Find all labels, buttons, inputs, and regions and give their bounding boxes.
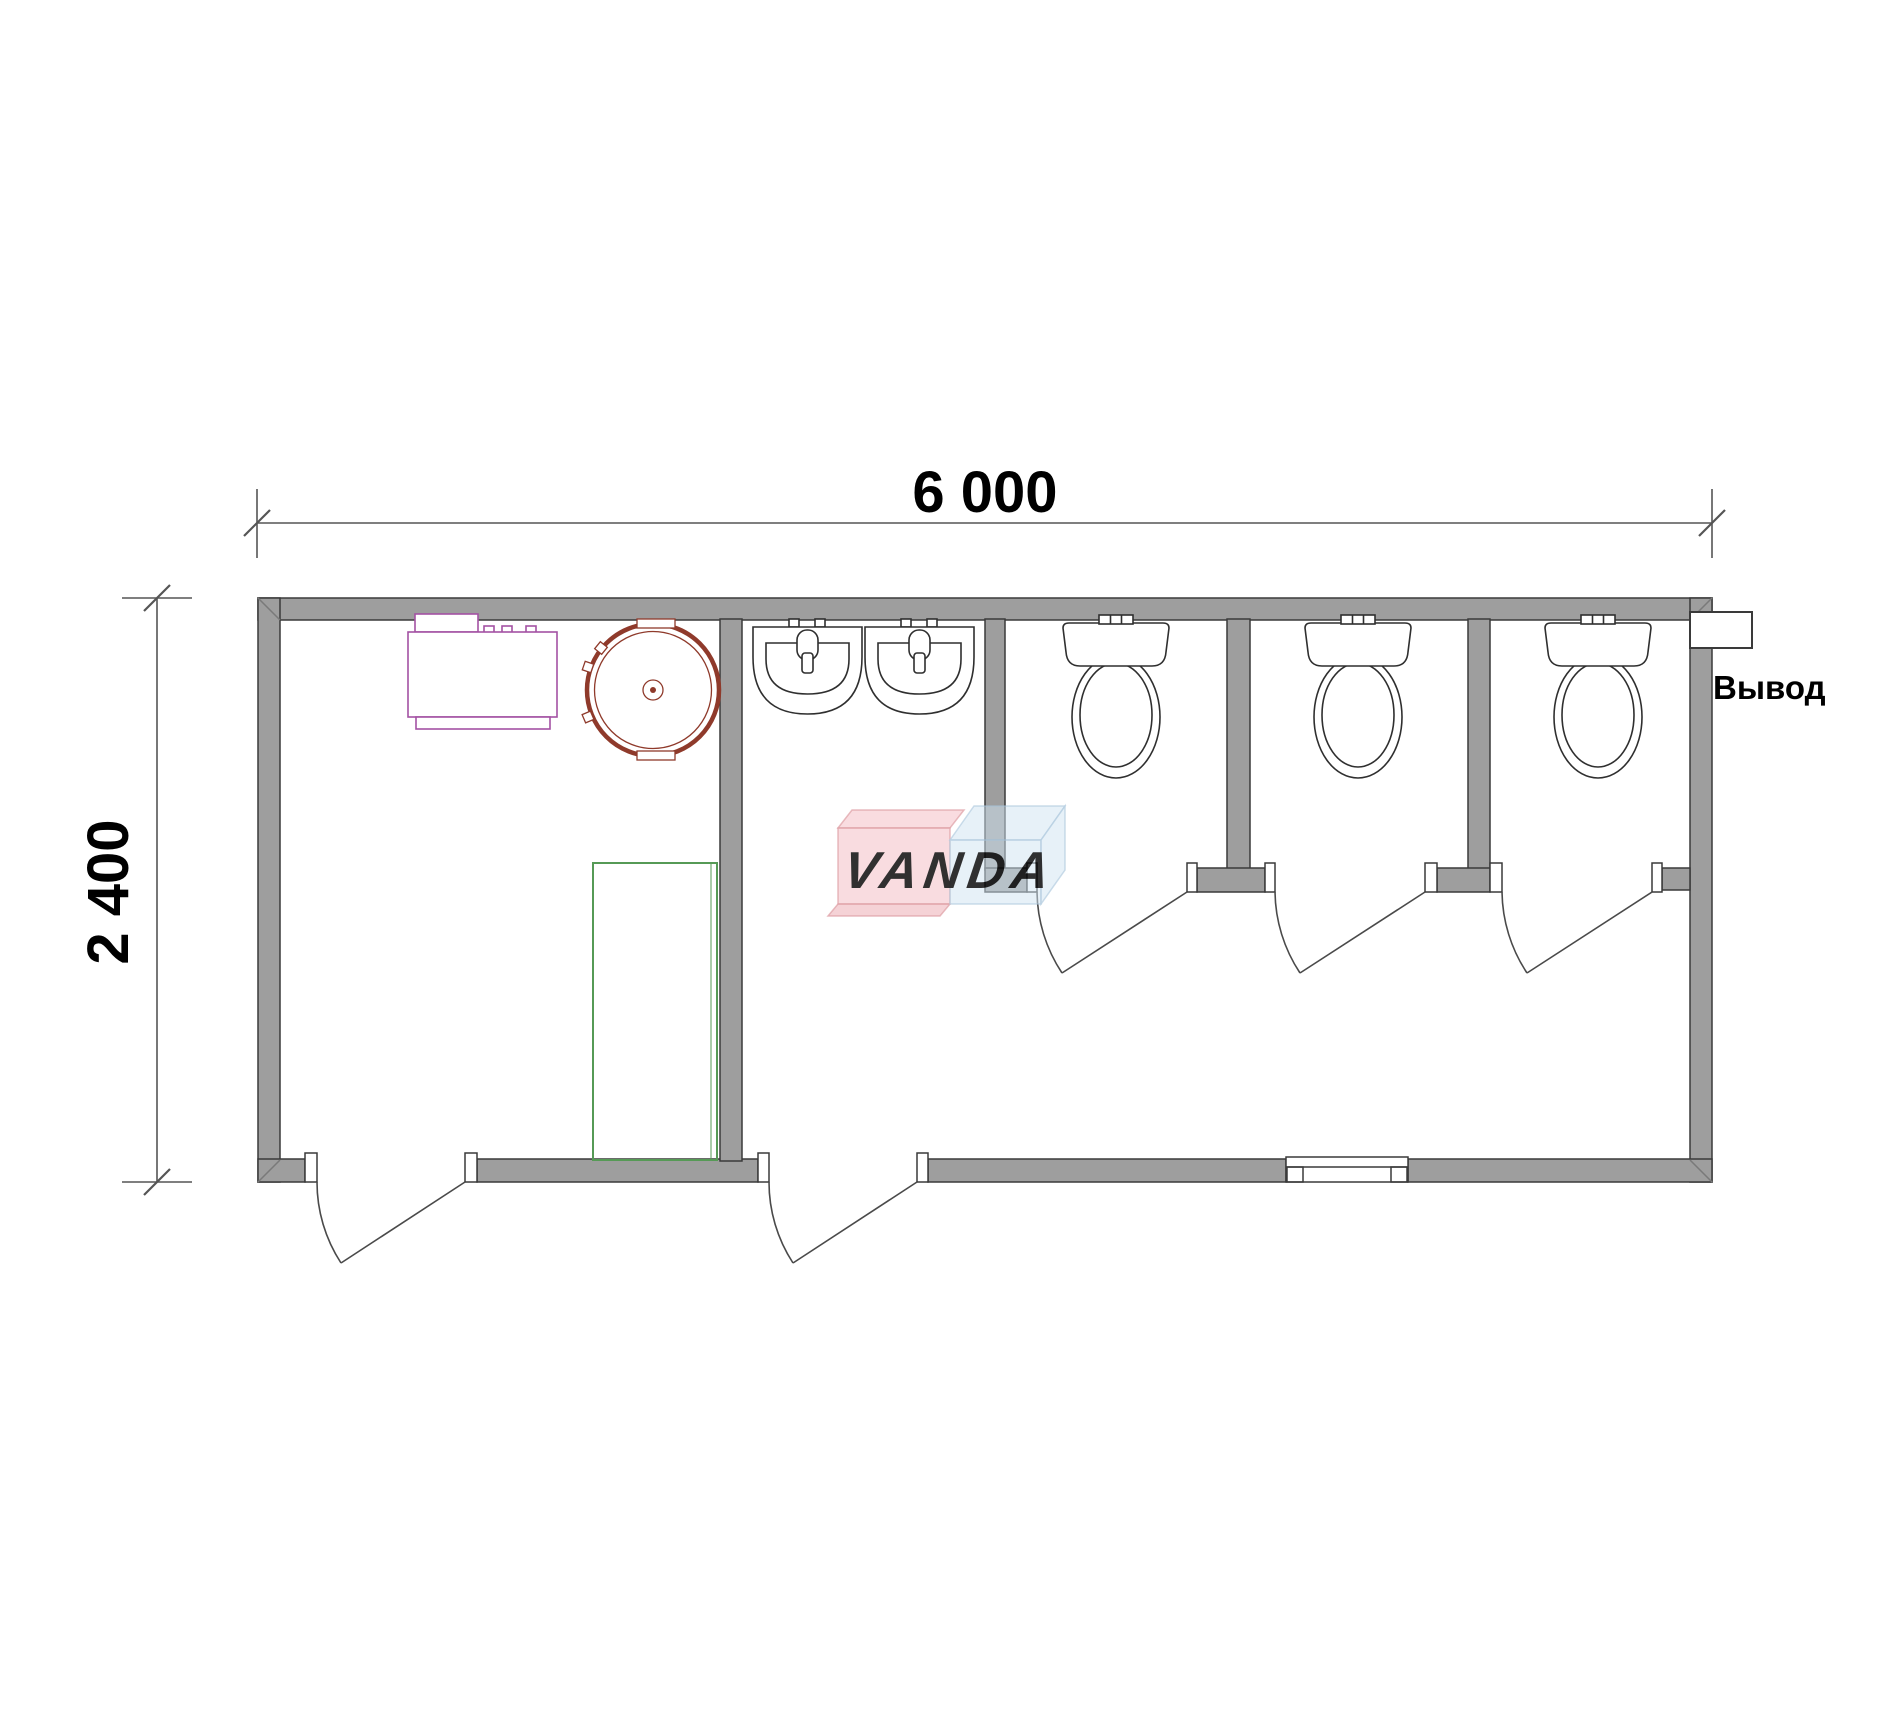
toilet-icon (1545, 615, 1651, 778)
door-swing-left-room (317, 1182, 465, 1263)
window-frame (1286, 1157, 1408, 1182)
wall-right (1690, 598, 1712, 1182)
doors (317, 892, 1652, 1263)
door-jamb (1187, 863, 1197, 892)
shower-tray-outline (593, 863, 717, 1160)
wall-bottom-segment (258, 1159, 305, 1182)
door-jamb (1265, 863, 1275, 892)
dimension-height: 2 400 (76, 585, 192, 1195)
door-jamb (1425, 863, 1437, 892)
door-leaf (1300, 892, 1425, 973)
outlet-label: Вывод (1713, 669, 1826, 706)
toilets (1063, 615, 1651, 778)
door-arc (1502, 892, 1527, 973)
door-swing-stall-1 (1037, 892, 1187, 973)
tank-bottom-tab (637, 751, 675, 760)
door-arc (769, 1182, 793, 1263)
height-dimension-label: 2 400 (76, 819, 141, 964)
width-dimension-label: 6 000 (912, 460, 1057, 525)
door-jamb (465, 1153, 477, 1182)
partition-stall-3 (1468, 619, 1490, 870)
water-heater-top-tab (415, 614, 478, 632)
water-heater-body (408, 632, 557, 717)
partition-stall-2-foot (1197, 868, 1265, 892)
door-leaf (793, 1182, 917, 1263)
round-water-tank-icon (582, 619, 719, 760)
watermark-pink-top (838, 810, 964, 828)
door-swing-stall-3 (1502, 892, 1652, 973)
washbasin-icon (865, 619, 974, 714)
toilet-icon (1063, 615, 1169, 778)
door-jamb (917, 1153, 928, 1182)
door-arc (317, 1182, 341, 1263)
wall-bottom-segment (477, 1159, 758, 1182)
partition-stall-3-foot (1437, 868, 1490, 892)
vanda-watermark: VANDA (828, 806, 1065, 916)
partition-stall-2 (1227, 619, 1250, 870)
door-leaf (1062, 892, 1187, 973)
water-heater-icon (408, 614, 557, 729)
washbasin-icon (753, 619, 862, 714)
outlet-box (1690, 612, 1752, 648)
shower-tray-icon (593, 863, 717, 1160)
tank-center-dot (650, 687, 656, 693)
wall-bottom-segment (928, 1159, 1286, 1182)
floor-plan-canvas: 6 000 2 400 (0, 0, 1902, 1717)
door-swing-washroom (769, 1182, 917, 1263)
wall-bottom-segment (1408, 1159, 1712, 1182)
door-jamb (1652, 863, 1662, 892)
watermark-text: VANDA (840, 842, 1059, 900)
dimension-width: 6 000 (244, 460, 1725, 558)
window (1286, 1157, 1408, 1182)
tank-top-tab (637, 619, 675, 628)
door-jamb (1490, 863, 1502, 892)
partition-right-stub (1662, 868, 1690, 890)
toilet-icon (1305, 615, 1411, 778)
door-leaf (341, 1182, 465, 1263)
door-leaf (1527, 892, 1652, 973)
wall-left (258, 598, 280, 1182)
floor-plan-page: 6 000 2 400 (0, 0, 1902, 1717)
door-jamb (305, 1153, 317, 1182)
door-jamb (758, 1153, 769, 1182)
door-jambs (305, 863, 1662, 1182)
tank-lug (582, 661, 593, 672)
door-arc (1275, 892, 1300, 973)
door-swing-stall-2 (1275, 892, 1425, 973)
washbasins (753, 619, 974, 714)
watermark-pink-bottom (828, 904, 950, 916)
partition-left-room (720, 619, 742, 1161)
water-heater-base (416, 717, 550, 729)
